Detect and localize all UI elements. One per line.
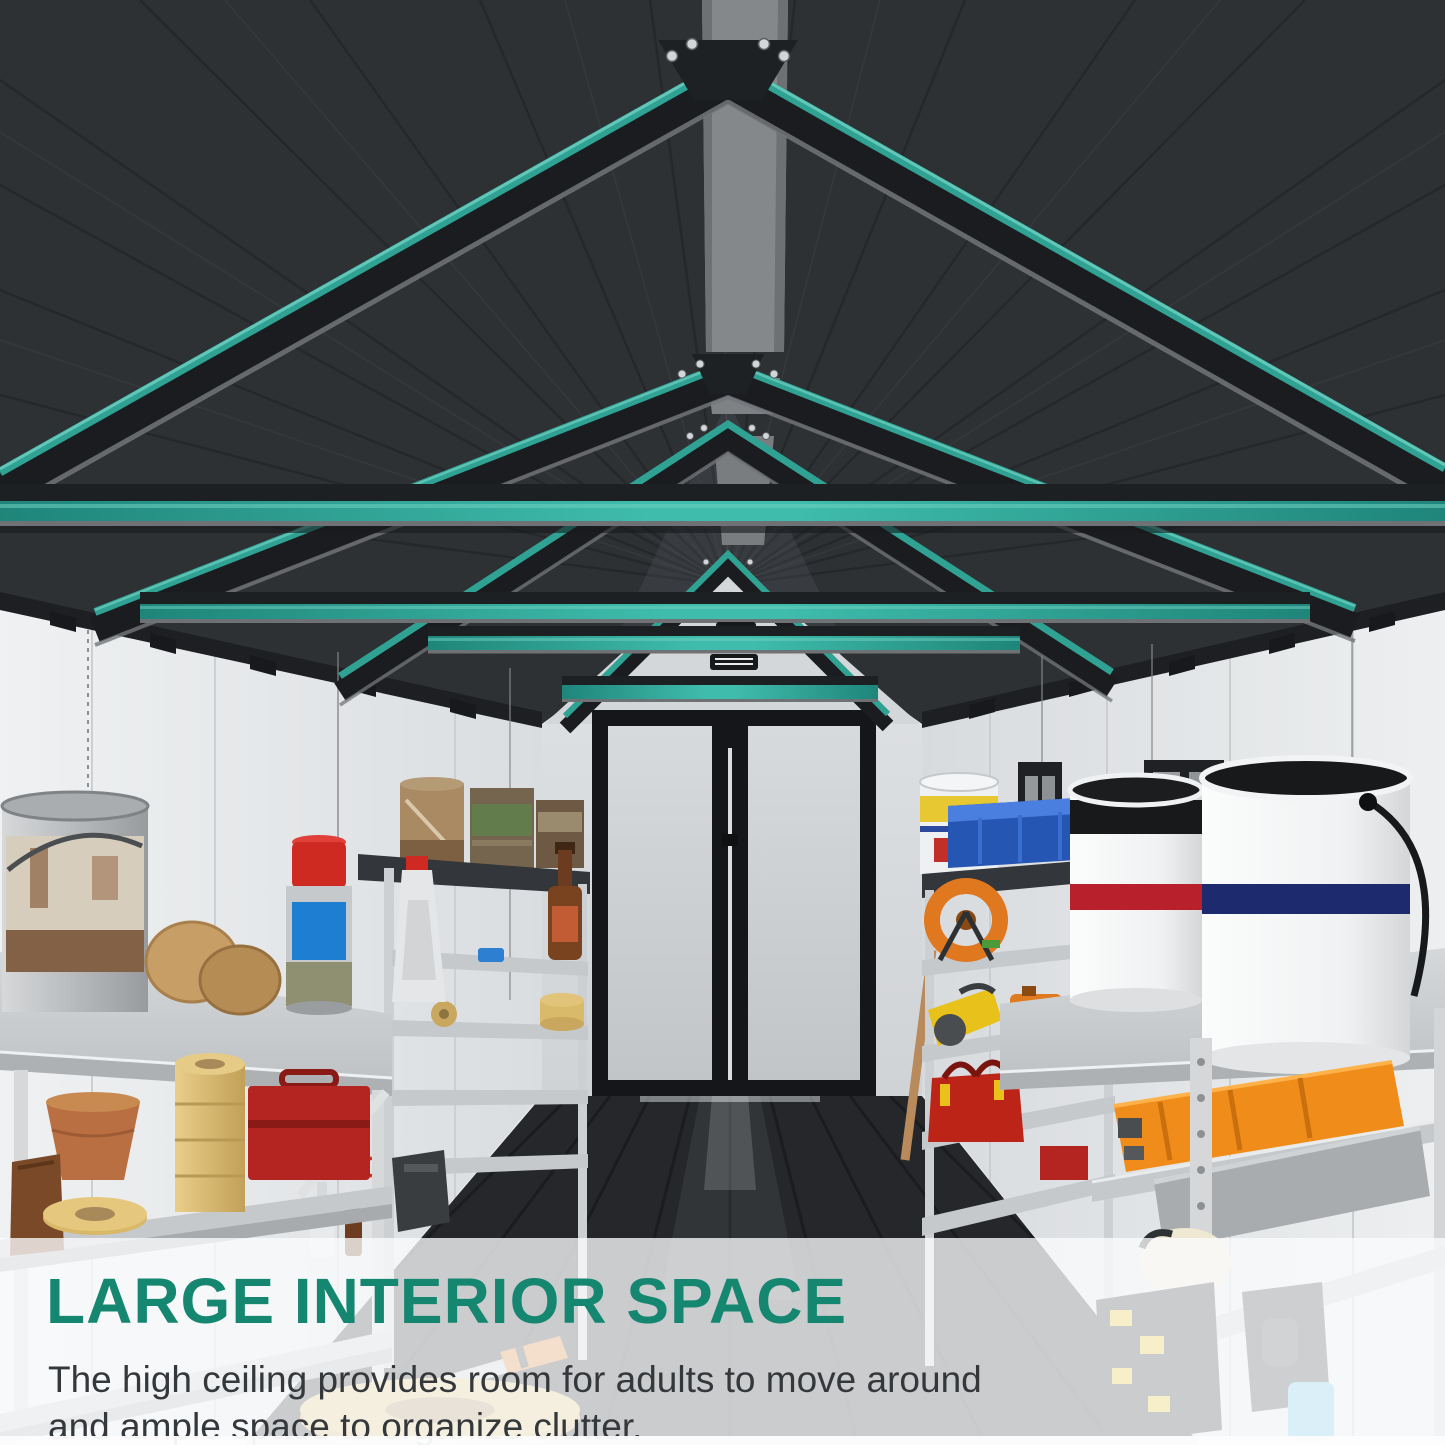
caption-line-1: The high ceiling provides room for adult… [48,1356,982,1403]
door-gap-light [728,748,732,1080]
collar-beam-2 [140,592,1310,623]
collar-beam-front [0,484,1445,533]
door-left-panel [608,726,712,1080]
flat-tape-roll [43,1197,147,1235]
navy-stripe-bucket [1202,758,1426,1074]
yellow-tape-rolls [540,993,584,1031]
tool-roll [392,1150,450,1232]
double-door [592,710,876,1106]
red-toolbox [248,1072,370,1180]
door-right-panel [748,726,860,1080]
big-tape-roll [175,1053,245,1212]
collar-beam-4 [562,676,878,702]
tape-roll-small [431,1001,457,1027]
product-image: LARGE INTERIOR SPACE The high ceiling pr… [0,0,1445,1445]
rusty-bucket [400,777,464,868]
blue-tool [478,948,504,962]
small-red-box [1040,1146,1088,1180]
caption-panel: LARGE INTERIOR SPACE The high ceiling pr… [0,1238,1445,1445]
scene-illustration [0,0,1445,1445]
collar-beam-3 [428,626,1020,654]
bottom-strip [0,1436,1445,1445]
large-paint-can [2,792,148,1012]
vent-grille-lower [710,654,758,670]
rack-tier [392,1090,588,1106]
caption-description: The high ceiling provides room for adult… [48,1356,982,1445]
door-latch [722,834,738,846]
spray-can [286,835,352,1015]
red-stripe-bucket [1070,775,1202,1012]
caption-title: LARGE INTERIOR SPACE [46,1264,847,1338]
